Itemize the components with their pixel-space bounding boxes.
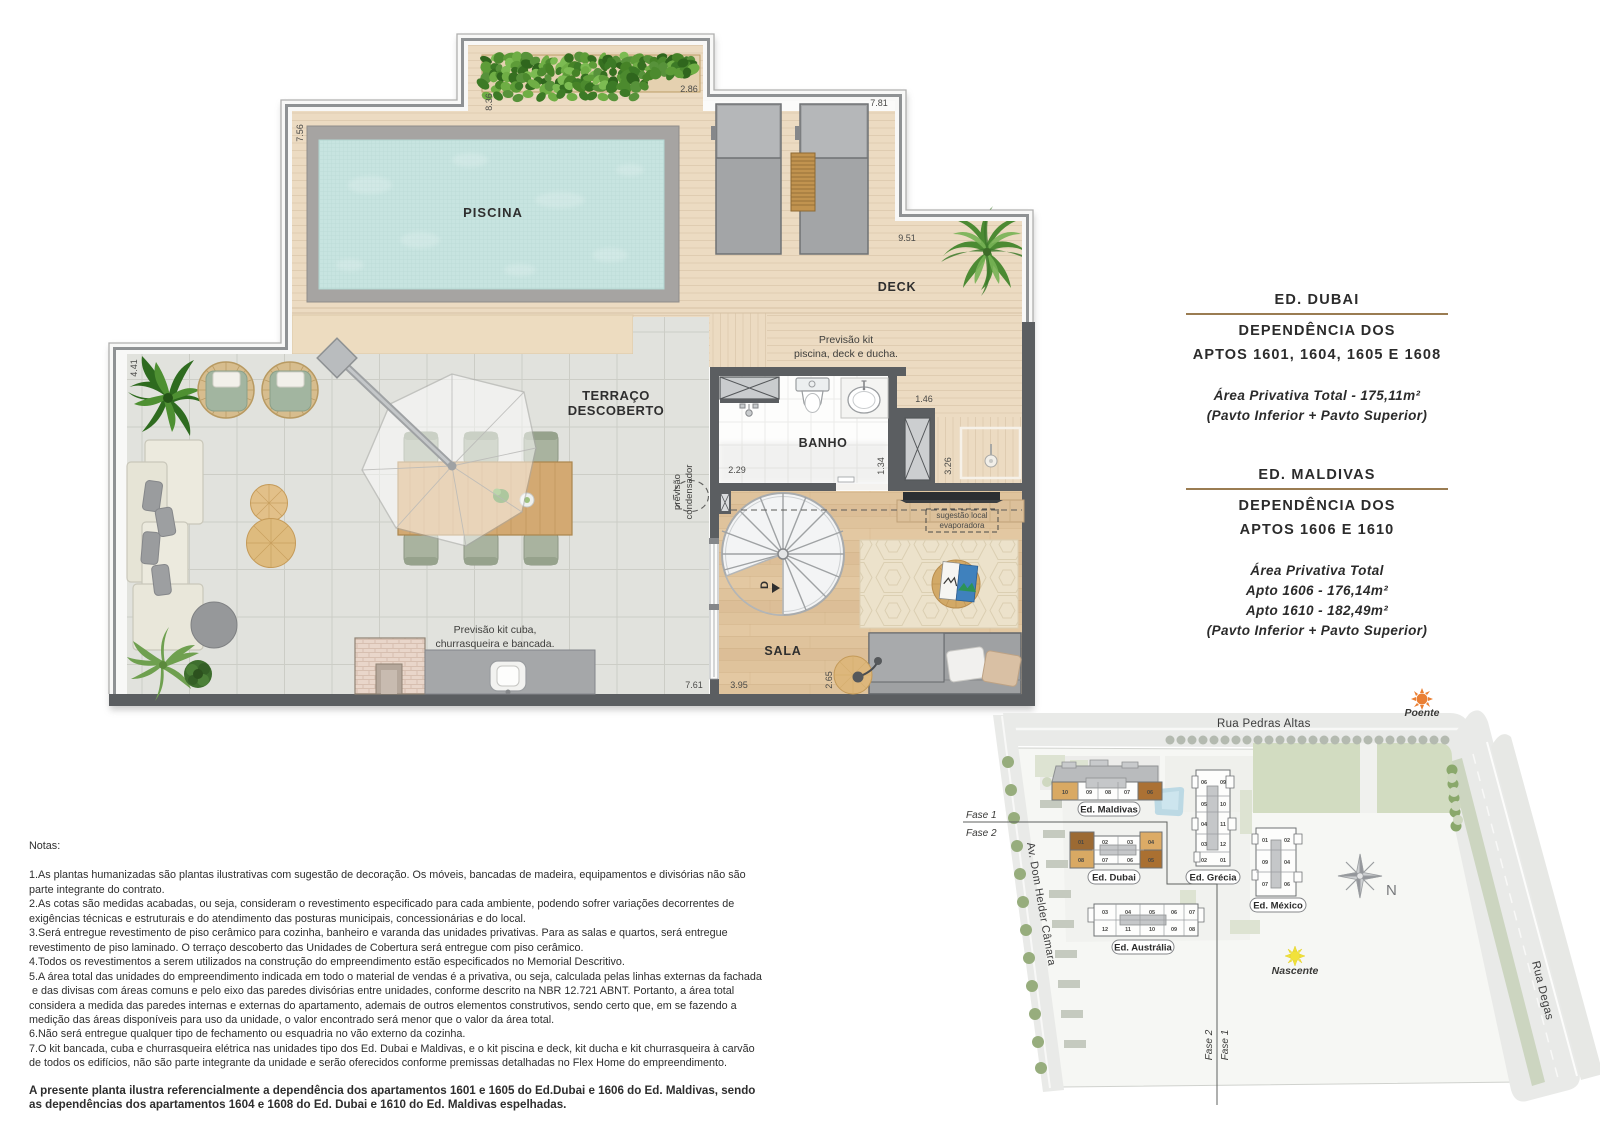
svg-text:D: D [759,581,771,589]
svg-text:7.56: 7.56 [295,124,305,142]
svg-text:piscina, deck e ducha.: piscina, deck e ducha. [794,348,898,360]
svg-text:churrasqueira e bancada.: churrasqueira e bancada. [435,638,554,650]
svg-text:02: 02 [1201,858,1207,864]
svg-text:Ed. Maldivas: Ed. Maldivas [1080,805,1138,816]
svg-text:06: 06 [1171,910,1177,916]
svg-text:Nascente: Nascente [1272,965,1319,977]
svg-text:04: 04 [1284,860,1291,866]
svg-text:2.29: 2.29 [728,465,746,475]
svg-text:Fase 2: Fase 2 [1204,1029,1215,1060]
svg-text:Fase 1: Fase 1 [1220,1030,1231,1061]
svg-text:10: 10 [1149,927,1155,933]
svg-text:04: 04 [1201,822,1208,828]
svg-text:03: 03 [1127,840,1133,846]
svg-text:04: 04 [1148,840,1155,846]
svg-text:03: 03 [1201,842,1207,848]
svg-text:10: 10 [1062,790,1068,796]
svg-text:10: 10 [1220,802,1226,808]
svg-text:sugestão local: sugestão local [936,511,987,520]
svg-text:01: 01 [1078,840,1084,846]
svg-text:05: 05 [1201,802,1207,808]
svg-text:3.95: 3.95 [730,680,748,690]
svg-text:11: 11 [1220,822,1226,828]
svg-text:01: 01 [1262,838,1268,844]
svg-text:Rua Pedras Altas: Rua Pedras Altas [1217,718,1311,730]
svg-text:06: 06 [1147,790,1153,796]
svg-text:12: 12 [1102,927,1108,933]
svg-text:04: 04 [1125,910,1132,916]
svg-text:01: 01 [1220,858,1226,864]
svg-text:07: 07 [1124,790,1130,796]
svg-text:06: 06 [1284,882,1290,888]
svg-text:condensador: condensador [684,465,695,520]
svg-text:evaporadora: evaporadora [940,521,985,530]
svg-text:DESCOBERTO: DESCOBERTO [568,403,665,418]
svg-text:BANHO: BANHO [799,436,848,450]
svg-text:Ed. Dubai: Ed. Dubai [1092,873,1136,884]
svg-text:1.46: 1.46 [915,394,933,404]
svg-text:12: 12 [1220,842,1226,848]
svg-text:previsão: previsão [672,474,683,510]
svg-text:PISCINA: PISCINA [463,205,523,220]
svg-text:09: 09 [1086,790,1092,796]
svg-text:7.61: 7.61 [685,680,703,690]
svg-text:4.41: 4.41 [129,359,139,377]
svg-text:Ed. México: Ed. México [1253,901,1303,912]
svg-text:8.36: 8.36 [484,93,494,111]
svg-text:07: 07 [1189,910,1195,916]
svg-text:09: 09 [1171,927,1177,933]
svg-text:07: 07 [1262,882,1268,888]
svg-text:N: N [1386,882,1397,899]
svg-text:Fase 2: Fase 2 [966,828,997,839]
svg-text:08: 08 [1078,858,1084,864]
svg-text:06: 06 [1201,780,1207,786]
svg-text:Ed. Austrália: Ed. Austrália [1114,943,1172,954]
svg-text:06: 06 [1127,858,1133,864]
svg-text:Previsão kit: Previsão kit [819,334,873,346]
svg-text:02: 02 [1102,840,1108,846]
svg-text:DECK: DECK [878,280,917,294]
svg-text:08: 08 [1189,927,1195,933]
svg-text:2.86: 2.86 [680,84,698,94]
svg-text:1.34: 1.34 [876,457,886,475]
svg-text:9.51: 9.51 [898,233,916,243]
svg-text:11: 11 [1125,927,1131,933]
svg-text:Previsão kit cuba,: Previsão kit cuba, [454,624,537,636]
svg-text:09: 09 [1262,860,1268,866]
svg-text:3.26: 3.26 [943,457,953,475]
svg-text:05: 05 [1148,858,1154,864]
svg-text:03: 03 [1102,910,1108,916]
svg-text:05: 05 [1149,910,1155,916]
svg-text:2.65: 2.65 [824,671,834,689]
svg-text:Ed. Grécia: Ed. Grécia [1190,873,1238,884]
svg-text:09: 09 [1220,780,1226,786]
svg-text:02: 02 [1284,838,1290,844]
svg-text:Fase 1: Fase 1 [966,810,997,821]
svg-text:SALA: SALA [764,644,801,658]
svg-text:7.81: 7.81 [870,98,888,108]
svg-text:07: 07 [1102,858,1108,864]
svg-text:Poente: Poente [1404,707,1439,719]
svg-text:TERRAÇO: TERRAÇO [582,388,650,403]
svg-text:08: 08 [1105,790,1111,796]
